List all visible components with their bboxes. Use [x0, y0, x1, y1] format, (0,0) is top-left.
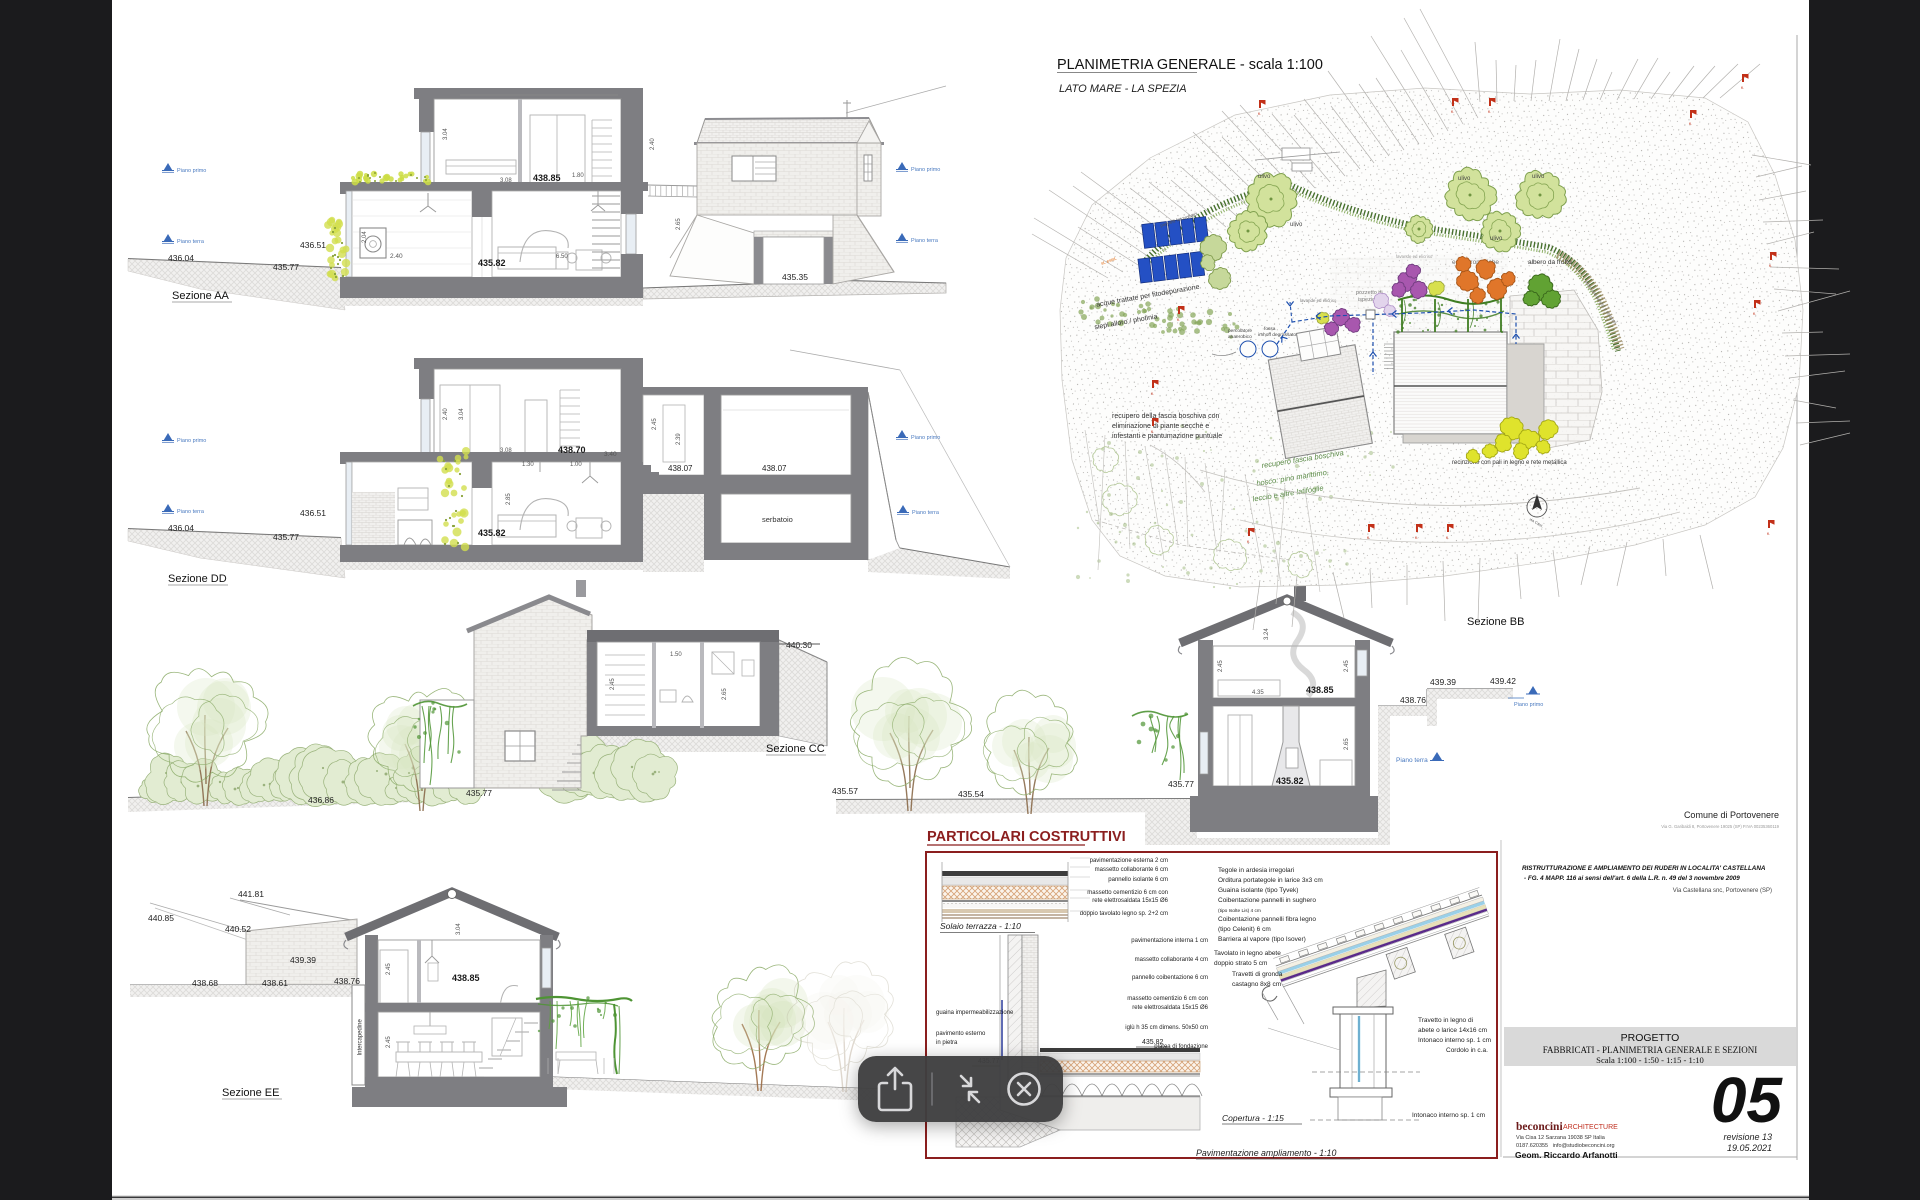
svg-text:Piano terra: Piano terra: [177, 509, 205, 515]
svg-text:440.52: 440.52: [225, 924, 251, 934]
svg-text:Pavimentazione ampliamento - 1: Pavimentazione ampliamento - 1:10: [1196, 1148, 1336, 1158]
svg-text:serbatoio: serbatoio: [762, 515, 793, 524]
svg-text:2.18: 2.18: [622, 646, 634, 652]
svg-text:441.81: 441.81: [238, 889, 264, 899]
svg-text:iglù h 35 cm dimens. 50x50 cm: iglù h 35 cm dimens. 50x50 cm: [1125, 1025, 1208, 1031]
svg-text:fossa: fossa: [1264, 326, 1276, 332]
svg-text:438.85: 438.85: [533, 173, 561, 183]
svg-text:4.35: 4.35: [1252, 690, 1264, 696]
svg-text:rete elettrosaldata 15x15 Ø6: rete elettrosaldata 15x15 Ø6: [1092, 898, 1168, 904]
svg-text:fl.: fl.: [1415, 535, 1418, 540]
svg-text:abete o larice 14x16 cm: abete o larice 14x16 cm: [1418, 1027, 1487, 1034]
svg-text:ulivo: ulivo: [1490, 236, 1503, 242]
svg-text:massetto cementizio 6 cm con: massetto cementizio 6 cm con: [1087, 890, 1168, 896]
svg-text:albero da frutto: albero da frutto: [1528, 259, 1572, 266]
svg-text:revisione 13: revisione 13: [1723, 1132, 1772, 1142]
svg-text:Piano primo: Piano primo: [177, 168, 206, 174]
svg-text:pavimentazione interna 1 cm: pavimentazione interna 1 cm: [1131, 938, 1208, 944]
svg-text:438.61: 438.61: [262, 978, 288, 988]
svg-text:Barriera al vapore (tipo Isove: Barriera al vapore (tipo Isover): [1218, 936, 1306, 943]
svg-text:438.07: 438.07: [762, 464, 787, 473]
svg-text:3.04: 3.04: [443, 128, 449, 140]
svg-text:Via G. Garibaldi 8, Portovener: Via G. Garibaldi 8, Portovenere 19025 (S…: [1661, 824, 1779, 829]
svg-text:(tipo Celenit) 6 cm: (tipo Celenit) 6 cm: [1218, 926, 1271, 933]
svg-text:2.65: 2.65: [722, 688, 728, 700]
svg-text:439.39: 439.39: [290, 955, 316, 965]
svg-text:1.00: 1.00: [570, 462, 582, 468]
svg-text:2.65: 2.65: [1344, 738, 1350, 750]
svg-text:Coibentazione pannelli in sugh: Coibentazione pannelli in sughero: [1218, 897, 1316, 904]
svg-text:fl.: fl.: [1151, 429, 1154, 434]
svg-text:436.04: 436.04: [168, 523, 194, 533]
svg-text:Tavolato in legno abete: Tavolato in legno abete: [1214, 950, 1281, 957]
svg-text:435.77: 435.77: [466, 788, 492, 798]
svg-text:PROGETTO: PROGETTO: [1621, 1032, 1680, 1044]
svg-text:Piano primo: Piano primo: [1514, 702, 1543, 708]
svg-text:massetto collaborante 6 cm: massetto collaborante 6 cm: [1095, 867, 1168, 873]
svg-text:- FG. 4 MAPP. 116 ai sensi del: - FG. 4 MAPP. 116 ai sensi dell'art. 6 d…: [1524, 875, 1740, 882]
svg-text:imhoff degrassatore: imhoff degrassatore: [1258, 332, 1301, 338]
svg-text:440.30: 440.30: [786, 640, 812, 650]
svg-text:LATO MARE - LA SPEZIA: LATO MARE - LA SPEZIA: [1059, 83, 1187, 95]
svg-text:2.45: 2.45: [1218, 660, 1224, 672]
svg-text:in pietra: in pietra: [936, 1040, 958, 1046]
svg-text:435.77: 435.77: [273, 532, 299, 542]
svg-text:435.54: 435.54: [958, 789, 984, 799]
svg-text:eliminazione di piante secche: eliminazione di piante secche e: [1112, 423, 1209, 430]
svg-text:Sezione EE: Sezione EE: [222, 1087, 279, 1099]
svg-text:PARTICOLARI COSTRUTTIVI: PARTICOLARI COSTRUTTIVI: [927, 829, 1126, 845]
svg-text:1.80: 1.80: [572, 173, 584, 179]
svg-text:platea di fondazione: platea di fondazione: [1154, 1044, 1208, 1050]
svg-text:doppio strato 5 cm: doppio strato 5 cm: [1214, 960, 1267, 967]
svg-text:2.85: 2.85: [506, 493, 512, 505]
svg-text:436.86: 436.86: [308, 795, 334, 805]
svg-text:pannello isolante 6 cm: pannello isolante 6 cm: [1108, 877, 1168, 883]
svg-text:439.42: 439.42: [1490, 676, 1516, 686]
svg-text:436.04: 436.04: [168, 253, 194, 263]
svg-text:doppio tavolato legno sp. 2+2: doppio tavolato legno sp. 2+2 cm: [1080, 911, 1168, 917]
svg-text:infestanti e piantumazione pun: infestanti e piantumazione puntuale: [1112, 433, 1222, 440]
svg-text:2.40: 2.40: [443, 408, 449, 420]
svg-text:fl.: fl.: [1177, 317, 1180, 322]
svg-text:Sezione CC: Sezione CC: [766, 743, 825, 755]
svg-text:Intonaco interno sp. 1 cm: Intonaco interno sp. 1 cm: [1418, 1037, 1491, 1044]
svg-text:Copertura - 1:15: Copertura - 1:15: [1222, 1113, 1284, 1123]
svg-text:Cordolo in c.a.: Cordolo in c.a.: [1446, 1047, 1488, 1054]
svg-text:fl.: fl.: [1753, 311, 1756, 316]
svg-text:Intonaco interno sp. 1 cm: Intonaco interno sp. 1 cm: [1412, 1112, 1485, 1119]
svg-text:Orditura portategole in larice: Orditura portategole in larice 3x3 cm: [1218, 877, 1323, 884]
svg-text:436.51: 436.51: [300, 240, 326, 250]
svg-text:Sezione AA: Sezione AA: [172, 290, 230, 302]
svg-text:pavimento esterno: pavimento esterno: [936, 1031, 986, 1037]
svg-text:fl.: fl.: [1767, 531, 1770, 536]
svg-text:guaina impermeabilizzazione: guaina impermeabilizzazione: [936, 1010, 1014, 1016]
svg-text:440.85: 440.85: [148, 913, 174, 923]
svg-text:05: 05: [1711, 1064, 1784, 1136]
svg-text:439.39: 439.39: [1430, 677, 1456, 687]
svg-text:435.82: 435.82: [1276, 776, 1304, 786]
svg-text:fl.: fl.: [1769, 263, 1772, 268]
svg-text:fl.: fl.: [1247, 539, 1250, 544]
svg-text:Piano primo: Piano primo: [177, 438, 206, 444]
svg-text:2.04: 2.04: [362, 231, 368, 243]
svg-text:2.45: 2.45: [386, 1036, 392, 1048]
svg-text:Coibentazione pannelli fibra l: Coibentazione pannelli fibra legno: [1218, 916, 1316, 923]
svg-text:anaerobico: anaerobico: [1228, 334, 1252, 340]
svg-text:2.40: 2.40: [650, 138, 656, 150]
svg-text:3.40: 3.40: [604, 451, 617, 458]
svg-text:Piano terra: Piano terra: [912, 510, 940, 516]
svg-text:Piano primo: Piano primo: [911, 435, 940, 441]
svg-text:2.39: 2.39: [676, 433, 682, 445]
svg-text:435.57: 435.57: [832, 786, 858, 796]
svg-text:rete elettrosaldata 15x15 Ø6: rete elettrosaldata 15x15 Ø6: [1132, 1005, 1208, 1011]
svg-text:3.08: 3.08: [500, 178, 512, 184]
svg-text:ulivo: ulivo: [1258, 174, 1271, 180]
svg-text:2.65: 2.65: [676, 218, 682, 230]
svg-text:Tegole in ardesia irregolari: Tegole in ardesia irregolari: [1218, 867, 1294, 874]
svg-text:fl.: fl.: [1446, 535, 1449, 540]
svg-text:2.40: 2.40: [390, 253, 403, 260]
svg-text:0187.620355 info@studiobecon: 0187.620355 info@studiobeconcini.org: [1516, 1143, 1615, 1149]
svg-text:435.35: 435.35: [782, 272, 808, 282]
svg-text:recupero della fascia boschiva: recupero della fascia boschiva con: [1112, 413, 1220, 420]
svg-text:Piano primo: Piano primo: [911, 167, 940, 173]
svg-text:ulivo: ulivo: [1532, 174, 1545, 180]
svg-text:Via Castellana snc, Portovener: Via Castellana snc, Portovenere (SP): [1673, 888, 1772, 894]
svg-text:3.04: 3.04: [459, 408, 465, 420]
svg-text:Scala 1:100 - 1:50 - 1:15 - 1:: Scala 1:100 - 1:50 - 1:15 - 1:10: [1596, 1055, 1704, 1065]
svg-text:PLANIMETRIA GENERALE - scala 1: PLANIMETRIA GENERALE - scala 1:100: [1057, 57, 1323, 73]
svg-text:3.08: 3.08: [500, 448, 512, 454]
svg-text:ulivo: ulivo: [1290, 222, 1303, 228]
svg-text:1.50: 1.50: [670, 652, 682, 658]
svg-text:Travetti di gronda: Travetti di gronda: [1232, 971, 1283, 978]
svg-text:438.85: 438.85: [452, 973, 480, 983]
svg-text:fl.: fl.: [1258, 111, 1261, 116]
svg-text:2.45: 2.45: [1344, 660, 1350, 672]
svg-text:Piano terra: Piano terra: [911, 238, 939, 244]
svg-text:massetto collaborante 4 cm: massetto collaborante 4 cm: [1135, 957, 1208, 963]
svg-text:percolatore: percolatore: [1228, 328, 1252, 334]
svg-text:438.68: 438.68: [192, 978, 218, 988]
svg-text:massetto cementizio 6 cm con: massetto cementizio 6 cm con: [1127, 996, 1208, 1002]
svg-text:435.77: 435.77: [273, 262, 299, 272]
svg-text:436.51: 436.51: [300, 508, 326, 518]
svg-text:fl.: fl.: [1151, 391, 1154, 396]
svg-text:castagno 8x8 cm: castagno 8x8 cm: [1232, 981, 1281, 988]
svg-text:1.30: 1.30: [522, 462, 534, 468]
svg-text:RISTRUTTURAZIONE E AMPLIAMENTO: RISTRUTTURAZIONE E AMPLIAMENTO DEI RUDER…: [1522, 865, 1766, 872]
svg-text:pavimentazione esterna 2 cm: pavimentazione esterna 2 cm: [1090, 858, 1168, 864]
svg-text:438.07: 438.07: [668, 464, 693, 473]
svg-text:fl.: fl.: [1488, 109, 1491, 114]
svg-text:6.50: 6.50: [556, 254, 568, 260]
svg-text:Piano terra: Piano terra: [1396, 757, 1428, 764]
svg-text:(tipo Isolte Lis) 4 cm: (tipo Isolte Lis) 4 cm: [1218, 908, 1261, 914]
svg-text:Travetto in legno di: Travetto in legno di: [1418, 1017, 1473, 1024]
svg-text:pannello coibentazione 6 cm: pannello coibentazione 6 cm: [1132, 975, 1208, 981]
svg-text:Via Cisa 12 Sarzana 19038 SP I: Via Cisa 12 Sarzana 19038 SP Italia: [1516, 1135, 1606, 1141]
svg-text:fl.: fl.: [1367, 535, 1370, 540]
svg-text:ulivo: ulivo: [1458, 176, 1471, 182]
svg-text:ARCHITECTURE: ARCHITECTURE: [1563, 1124, 1618, 1131]
svg-text:Sezione BB: Sezione BB: [1467, 616, 1524, 628]
svg-text:fl.: fl.: [1451, 109, 1454, 114]
svg-text:fl.: fl.: [1689, 121, 1692, 126]
svg-text:435.82: 435.82: [478, 258, 506, 268]
svg-text:FABBRICATI - PLANIMETRIA GENER: FABBRICATI - PLANIMETRIA GENERALE E SEZI…: [1543, 1045, 1758, 1055]
svg-text:beconcini: beconcini: [1516, 1121, 1563, 1133]
svg-text:2.45: 2.45: [652, 418, 658, 430]
svg-text:Sezione DD: Sezione DD: [168, 573, 227, 585]
svg-text:438.76: 438.76: [334, 976, 360, 986]
svg-text:435.77: 435.77: [1168, 779, 1194, 789]
svg-text:Intercapedine: Intercapedine: [358, 1018, 364, 1055]
svg-text:Geom. Riccardo Arfanotti: Geom. Riccardo Arfanotti: [1515, 1150, 1618, 1160]
svg-text:19.05.2021: 19.05.2021: [1727, 1143, 1772, 1153]
svg-text:435.82: 435.82: [478, 528, 506, 538]
svg-text:3.04: 3.04: [456, 923, 462, 935]
svg-text:438.76: 438.76: [1400, 695, 1426, 705]
svg-text:438.70: 438.70: [558, 445, 586, 455]
svg-text:438.85: 438.85: [1306, 685, 1334, 695]
svg-text:2.45: 2.45: [386, 963, 392, 975]
svg-text:2.45: 2.45: [610, 678, 616, 690]
svg-text:Comune di Portovenere: Comune di Portovenere: [1684, 810, 1779, 820]
svg-text:Solaio terrazza - 1:10: Solaio terrazza - 1:10: [940, 921, 1021, 931]
svg-text:fl.: fl.: [1741, 85, 1744, 90]
svg-text:Guaina isolante (tipo Tyvek): Guaina isolante (tipo Tyvek): [1218, 887, 1298, 894]
svg-text:3.24: 3.24: [1264, 628, 1270, 640]
svg-text:Piano terra: Piano terra: [177, 239, 205, 245]
